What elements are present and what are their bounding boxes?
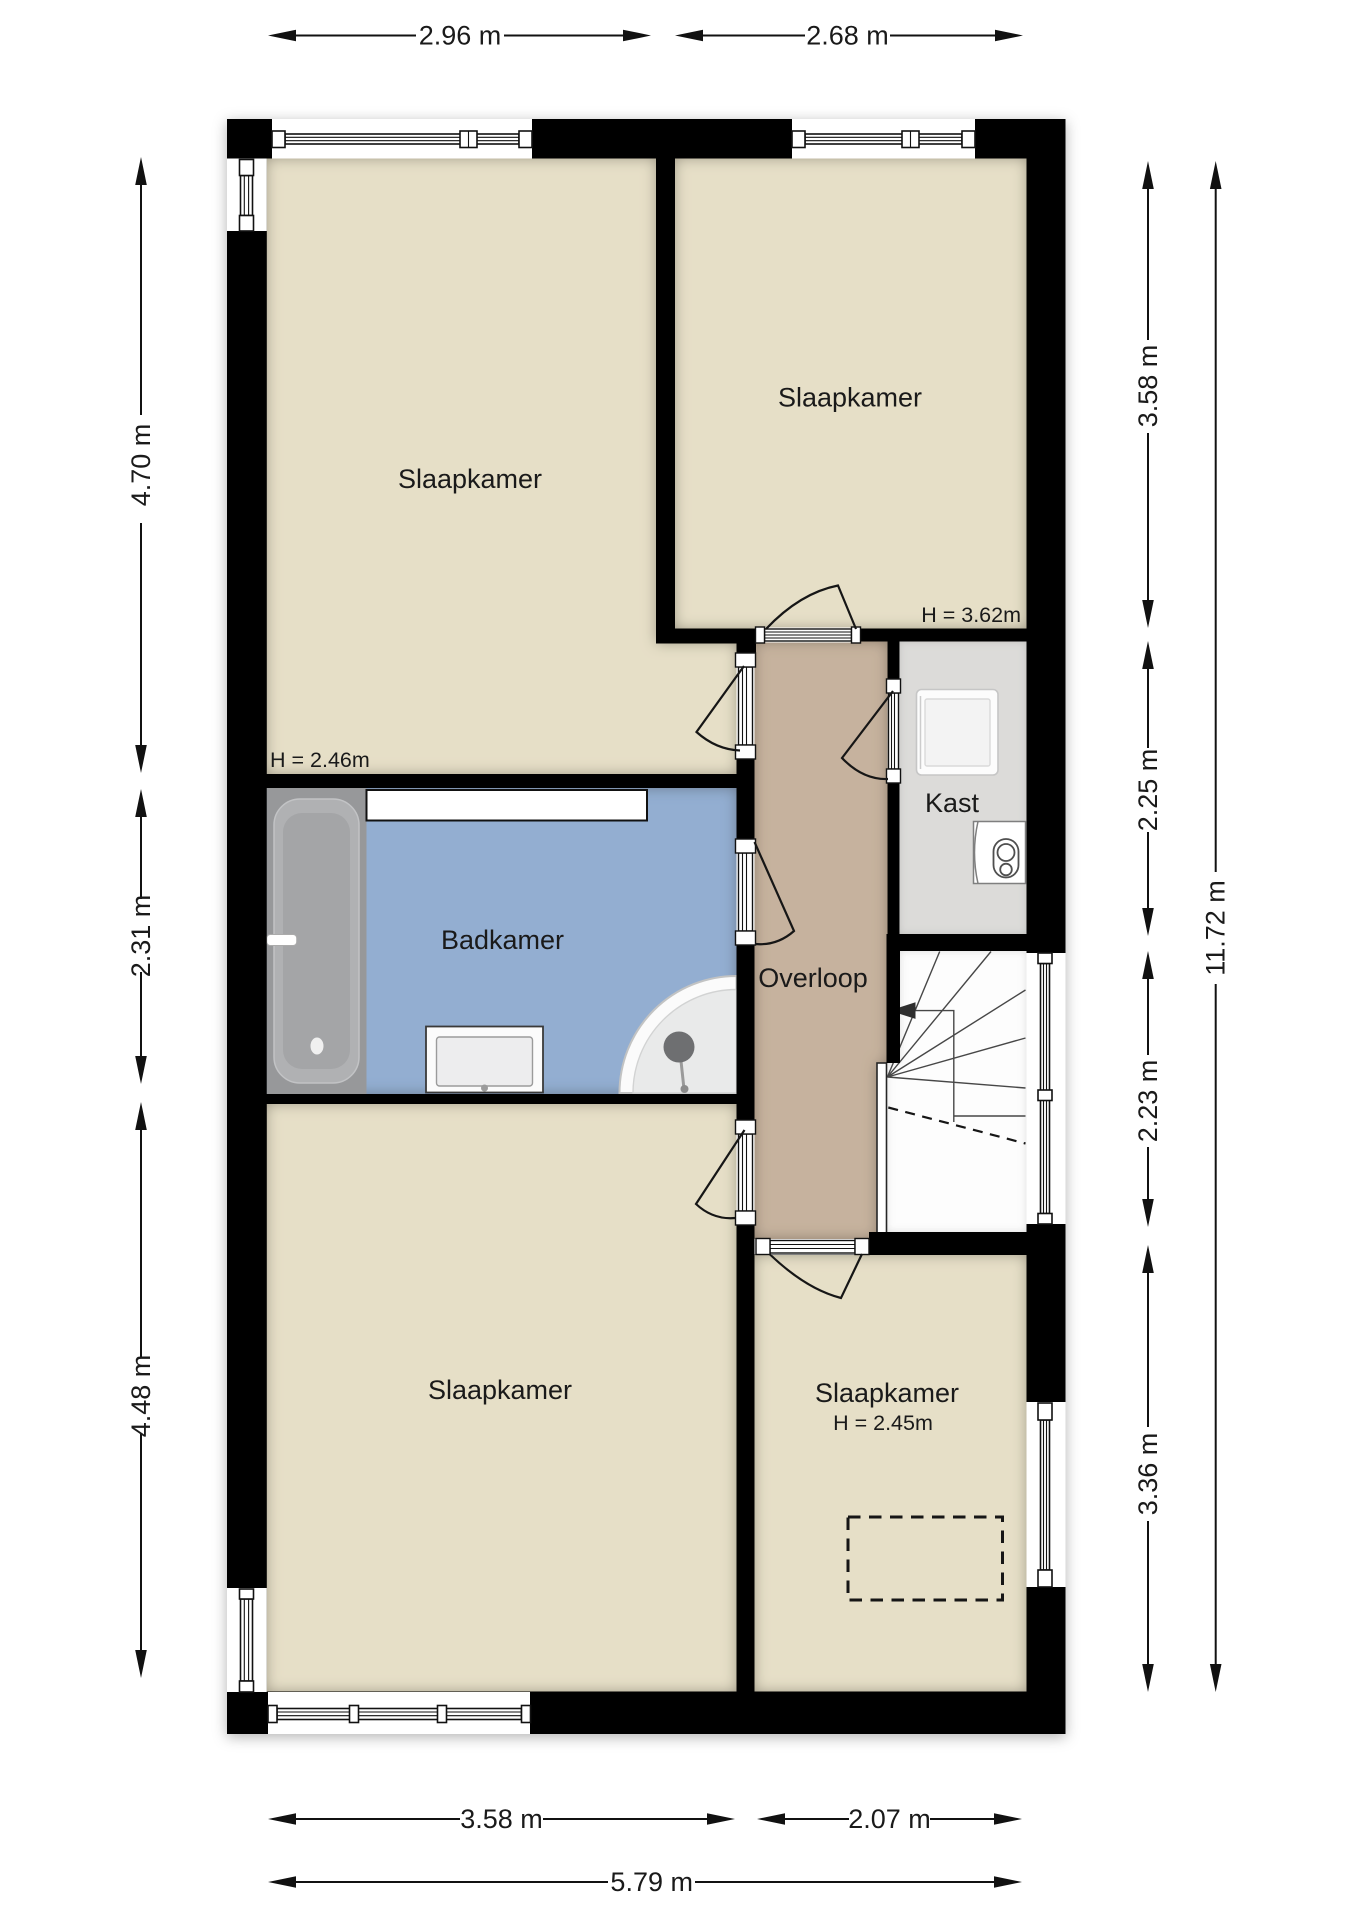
svg-text:2.96 m: 2.96 m: [419, 21, 502, 51]
svg-text:H = 3.62m: H = 3.62m: [921, 603, 1021, 627]
svg-text:3.58 m: 3.58 m: [1133, 345, 1163, 428]
svg-text:4.48 m: 4.48 m: [126, 1355, 156, 1438]
svg-text:3.36 m: 3.36 m: [1133, 1433, 1163, 1516]
svg-text:2.07 m: 2.07 m: [848, 1804, 931, 1834]
svg-text:Slaapkamer: Slaapkamer: [815, 1378, 959, 1408]
svg-text:Slaapkamer: Slaapkamer: [398, 464, 542, 494]
svg-text:2.23 m: 2.23 m: [1133, 1060, 1163, 1143]
svg-text:Overloop: Overloop: [758, 963, 868, 993]
svg-text:2.25 m: 2.25 m: [1133, 749, 1163, 832]
svg-text:Slaapkamer: Slaapkamer: [428, 1375, 572, 1405]
svg-text:H = 2.46m: H = 2.46m: [270, 748, 370, 772]
svg-text:2.68 m: 2.68 m: [806, 21, 889, 51]
svg-text:Slaapkamer: Slaapkamer: [778, 383, 922, 413]
svg-text:Badkamer: Badkamer: [441, 925, 564, 955]
svg-text:Kast: Kast: [925, 788, 980, 818]
svg-text:5.79 m: 5.79 m: [610, 1867, 693, 1897]
svg-text:3.58 m: 3.58 m: [460, 1804, 543, 1834]
svg-text:2.31 m: 2.31 m: [126, 895, 156, 978]
svg-text:H = 2.45m: H = 2.45m: [833, 1411, 933, 1435]
svg-text:4.70 m: 4.70 m: [126, 424, 156, 507]
svg-text:11.72 m: 11.72 m: [1201, 880, 1231, 976]
